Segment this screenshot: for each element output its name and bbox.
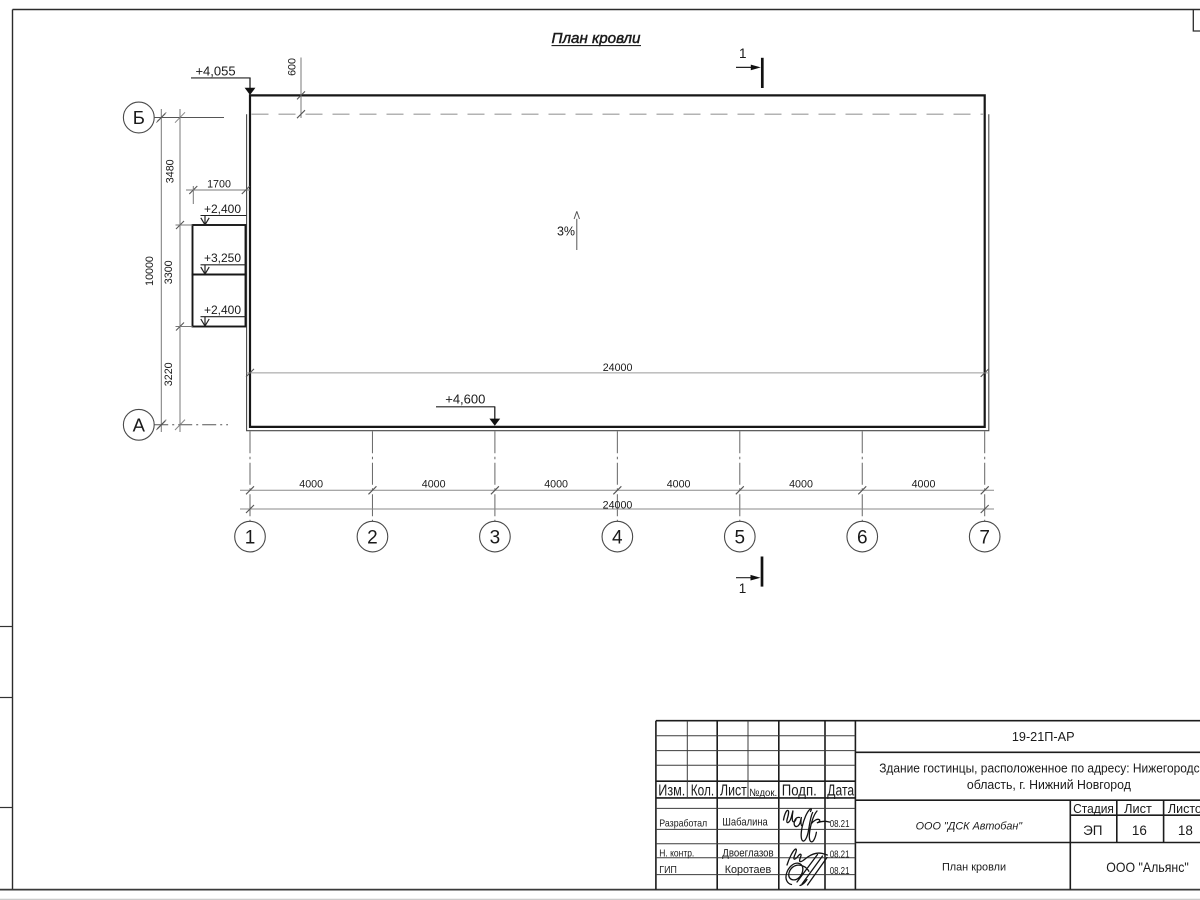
svg-text:4000: 4000 xyxy=(667,479,691,491)
svg-text:+3,250: +3,250 xyxy=(204,251,241,265)
svg-text:600: 600 xyxy=(287,58,299,76)
svg-text:Шабалина: Шабалина xyxy=(722,817,768,829)
svg-text:Лист: Лист xyxy=(1124,802,1152,816)
svg-text:4000: 4000 xyxy=(544,479,568,491)
svg-text:Разработал: Разработал xyxy=(659,817,707,829)
svg-text:19-21П-АР: 19-21П-АР xyxy=(1012,729,1075,744)
svg-text:3: 3 xyxy=(490,527,501,548)
svg-text:№док.: №док. xyxy=(749,787,777,799)
svg-text:16: 16 xyxy=(1132,823,1147,838)
svg-text:4000: 4000 xyxy=(299,479,323,491)
svg-text:Коротаев: Коротаев xyxy=(725,864,772,876)
svg-text:08.21: 08.21 xyxy=(830,848,850,860)
svg-text:4000: 4000 xyxy=(422,479,446,491)
svg-text:1: 1 xyxy=(739,581,747,596)
svg-text:А: А xyxy=(133,415,146,436)
svg-text:+2,400: +2,400 xyxy=(204,303,241,317)
svg-text:08.21: 08.21 xyxy=(830,865,850,877)
svg-text:1700: 1700 xyxy=(207,179,231,191)
svg-text:Двоеглазов: Двоеглазов xyxy=(722,848,774,860)
svg-text:3480: 3480 xyxy=(165,159,177,183)
svg-text:ООО "ДСК Автобан": ООО "ДСК Автобан" xyxy=(916,821,1024,833)
svg-text:3300: 3300 xyxy=(163,260,175,284)
svg-text:ЭП: ЭП xyxy=(1083,823,1102,838)
svg-text:+4,600: +4,600 xyxy=(445,392,485,407)
svg-text:2: 2 xyxy=(367,527,378,548)
svg-text:24000: 24000 xyxy=(603,362,633,374)
svg-text:4: 4 xyxy=(612,527,623,548)
svg-text:ГИП: ГИП xyxy=(659,864,677,876)
svg-text:Листов: Листов xyxy=(1168,802,1200,816)
svg-text:1: 1 xyxy=(739,46,747,61)
svg-text:3220: 3220 xyxy=(163,362,175,386)
svg-text:1: 1 xyxy=(245,527,256,548)
svg-text:7: 7 xyxy=(979,527,990,548)
svg-text:Кол.: Кол. xyxy=(691,783,714,800)
svg-text:Стадия: Стадия xyxy=(1073,802,1114,816)
svg-text:4000: 4000 xyxy=(789,479,813,491)
svg-text:+4,055: +4,055 xyxy=(195,63,235,78)
svg-text:Дата: Дата xyxy=(827,783,854,800)
svg-text:Лист: Лист xyxy=(720,783,747,800)
svg-text:Подп.: Подп. xyxy=(782,783,817,800)
svg-text:4000: 4000 xyxy=(912,479,936,491)
svg-text:Изм.: Изм. xyxy=(658,783,685,800)
svg-text:10000: 10000 xyxy=(144,256,156,286)
svg-text:5: 5 xyxy=(735,527,746,548)
svg-text:6: 6 xyxy=(857,527,868,548)
svg-text:08.21: 08.21 xyxy=(830,818,850,830)
svg-text:Н. контр.: Н. контр. xyxy=(659,848,694,860)
svg-text:Б: Б xyxy=(133,107,145,128)
svg-text:+2,400: +2,400 xyxy=(204,202,241,216)
svg-text:План кровли: План кровли xyxy=(942,862,1006,874)
svg-text:18: 18 xyxy=(1178,823,1193,838)
svg-text:24000: 24000 xyxy=(603,499,633,511)
svg-text:ООО "Альянс": ООО "Альянс" xyxy=(1106,859,1189,875)
svg-text:3%: 3% xyxy=(557,225,575,239)
svg-text:Здание гостинцы, расположенное: Здание гостинцы, расположенное по адресу… xyxy=(879,762,1200,776)
svg-text:область, г. Нижний Новгород: область, г. Нижний Новгород xyxy=(967,778,1132,792)
svg-text:План кровли: План кровли xyxy=(552,30,642,47)
